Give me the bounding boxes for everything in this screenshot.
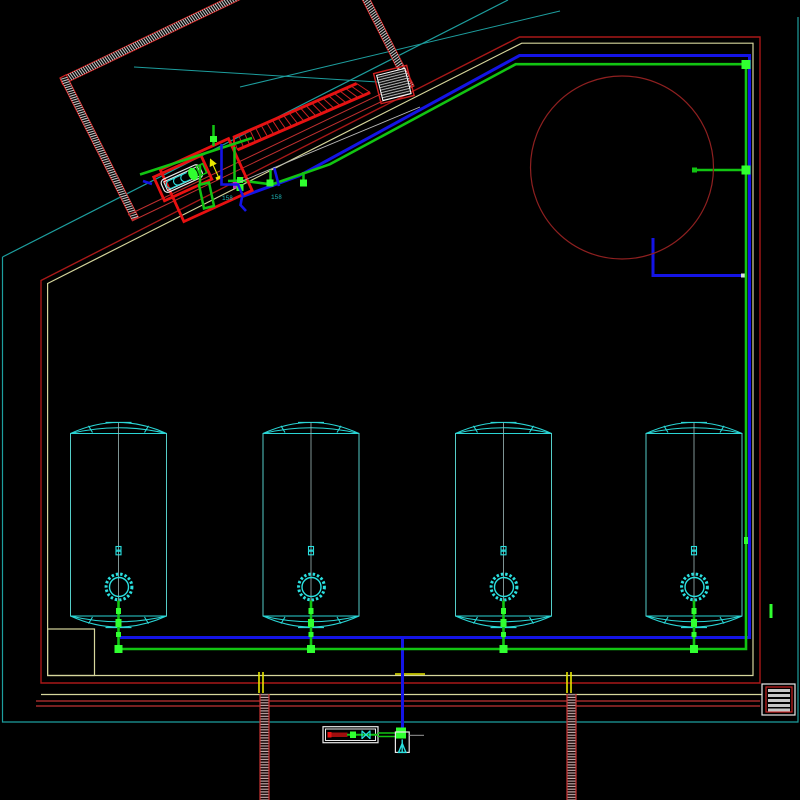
svg-text:158: 158	[222, 195, 233, 202]
svg-text:158: 158	[271, 194, 282, 201]
